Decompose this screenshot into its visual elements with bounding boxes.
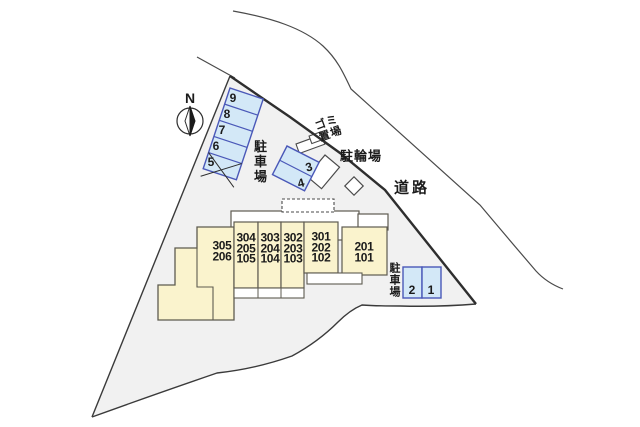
dashed-outline xyxy=(282,199,334,212)
balcony-strip-left xyxy=(234,288,304,298)
road-label: 道路 xyxy=(394,177,430,198)
unit-label-305-206: 305 206 xyxy=(212,241,231,262)
compass-icon xyxy=(177,106,203,136)
parking-lot-right-label: 駐車場 xyxy=(388,262,400,298)
space-label-9: 9 xyxy=(230,92,237,104)
unit-label-303-204-104: 303 204 104 xyxy=(260,232,279,264)
north-label: N xyxy=(185,91,195,105)
space-label-5: 5 xyxy=(208,156,215,168)
space-label-7: 7 xyxy=(219,124,226,136)
unit-label-301-202-102: 301 202 102 xyxy=(311,231,330,263)
unit-label-201-101: 201 101 xyxy=(354,242,373,263)
balcony-strip-right xyxy=(307,273,362,284)
space-label-2: 2 xyxy=(409,284,416,296)
space-label-6: 6 xyxy=(213,140,220,152)
site-plan-drawing xyxy=(0,0,640,427)
parking-lot-left-label: 駐車場 xyxy=(252,140,266,185)
compass-needle-west xyxy=(185,106,190,136)
bicycle-parking-label: 駐輪場 xyxy=(340,146,382,165)
unit-label-302-203-103: 302 203 103 xyxy=(283,232,302,264)
compass-needle-east xyxy=(190,106,195,136)
boundary-spur xyxy=(197,57,235,78)
unit-label-304-205-105: 304 205 105 xyxy=(236,232,255,264)
space-label-1: 1 xyxy=(428,284,435,296)
space-label-8: 8 xyxy=(224,108,231,120)
site-plan: N 9 8 7 6 5 3 4 2 1 駐車場 駐車場 ゴミ 置場 駐輪場 道路… xyxy=(0,0,640,427)
